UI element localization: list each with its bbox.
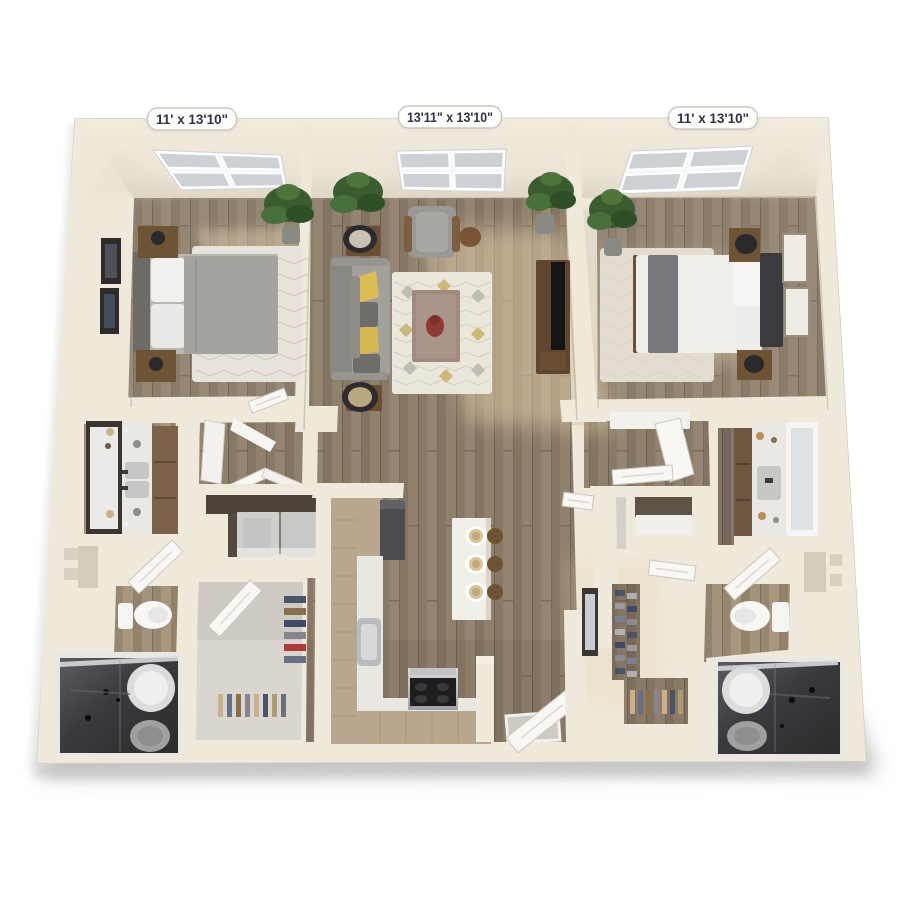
svg-text:11' x 13'10": 11' x 13'10": [156, 111, 228, 127]
svg-text:11' x 13'10": 11' x 13'10": [677, 110, 749, 126]
svg-text:13'11" x 13'10": 13'11" x 13'10": [407, 109, 493, 125]
